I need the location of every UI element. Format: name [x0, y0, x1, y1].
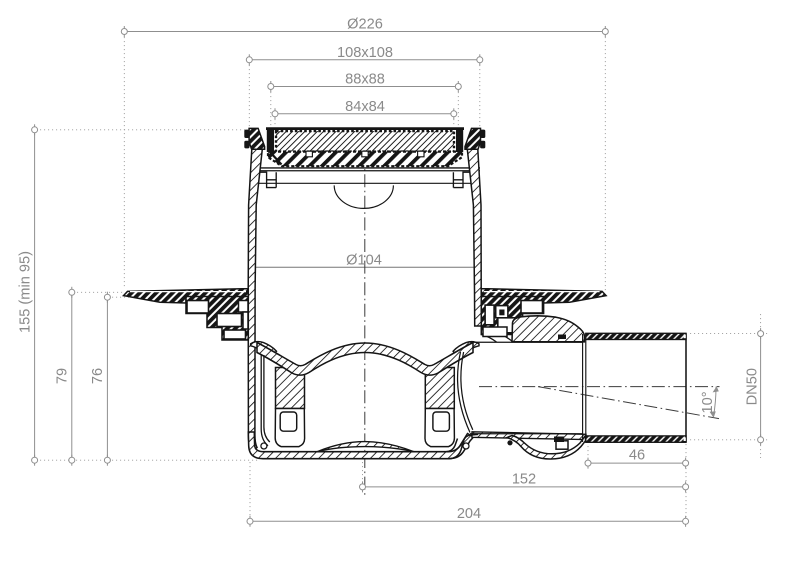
svg-text:204: 204	[457, 506, 481, 522]
svg-text:Ø226: Ø226	[347, 17, 383, 33]
svg-text:46: 46	[629, 448, 645, 464]
svg-text:108x108: 108x108	[337, 45, 393, 61]
svg-text:79: 79	[55, 368, 71, 384]
svg-text:155 (min 95): 155 (min 95)	[18, 251, 34, 333]
svg-text:76: 76	[90, 368, 106, 384]
svg-text:84x84: 84x84	[345, 99, 385, 115]
svg-text:DN50: DN50	[745, 368, 761, 405]
svg-text:152: 152	[512, 471, 536, 487]
svg-text:Ø104: Ø104	[346, 252, 382, 268]
svg-text:10°: 10°	[700, 391, 716, 413]
svg-text:88x88: 88x88	[345, 72, 385, 88]
